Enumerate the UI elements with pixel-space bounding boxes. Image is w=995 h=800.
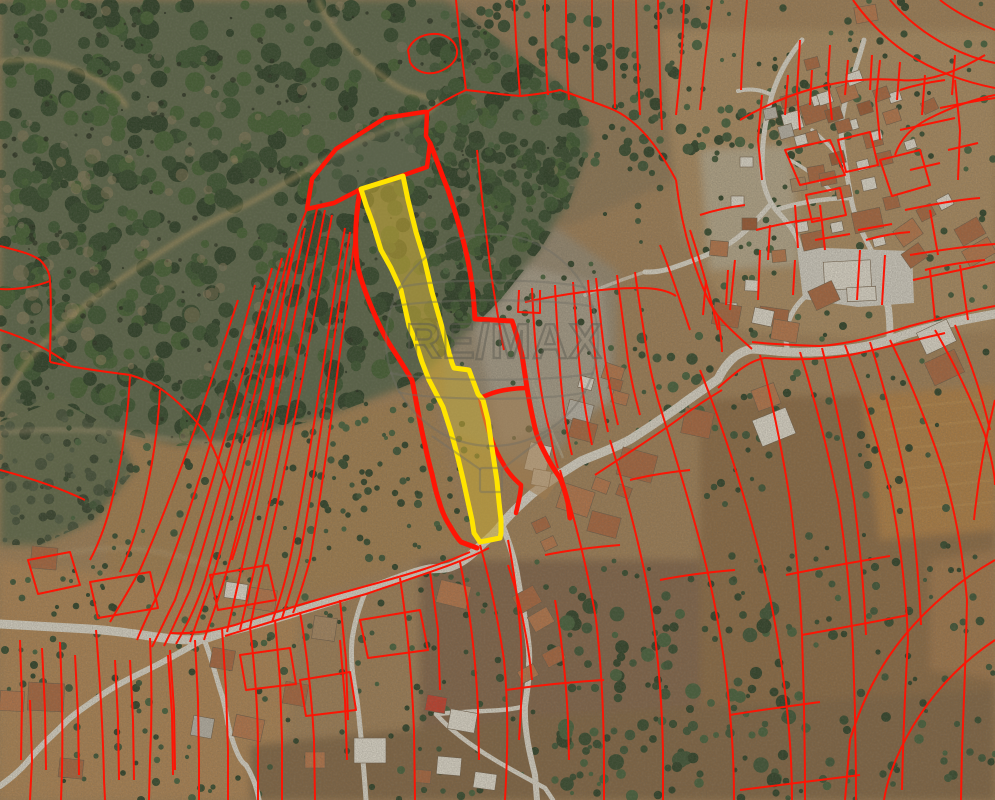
svg-text:RE/MAX: RE/MAX: [406, 315, 603, 369]
